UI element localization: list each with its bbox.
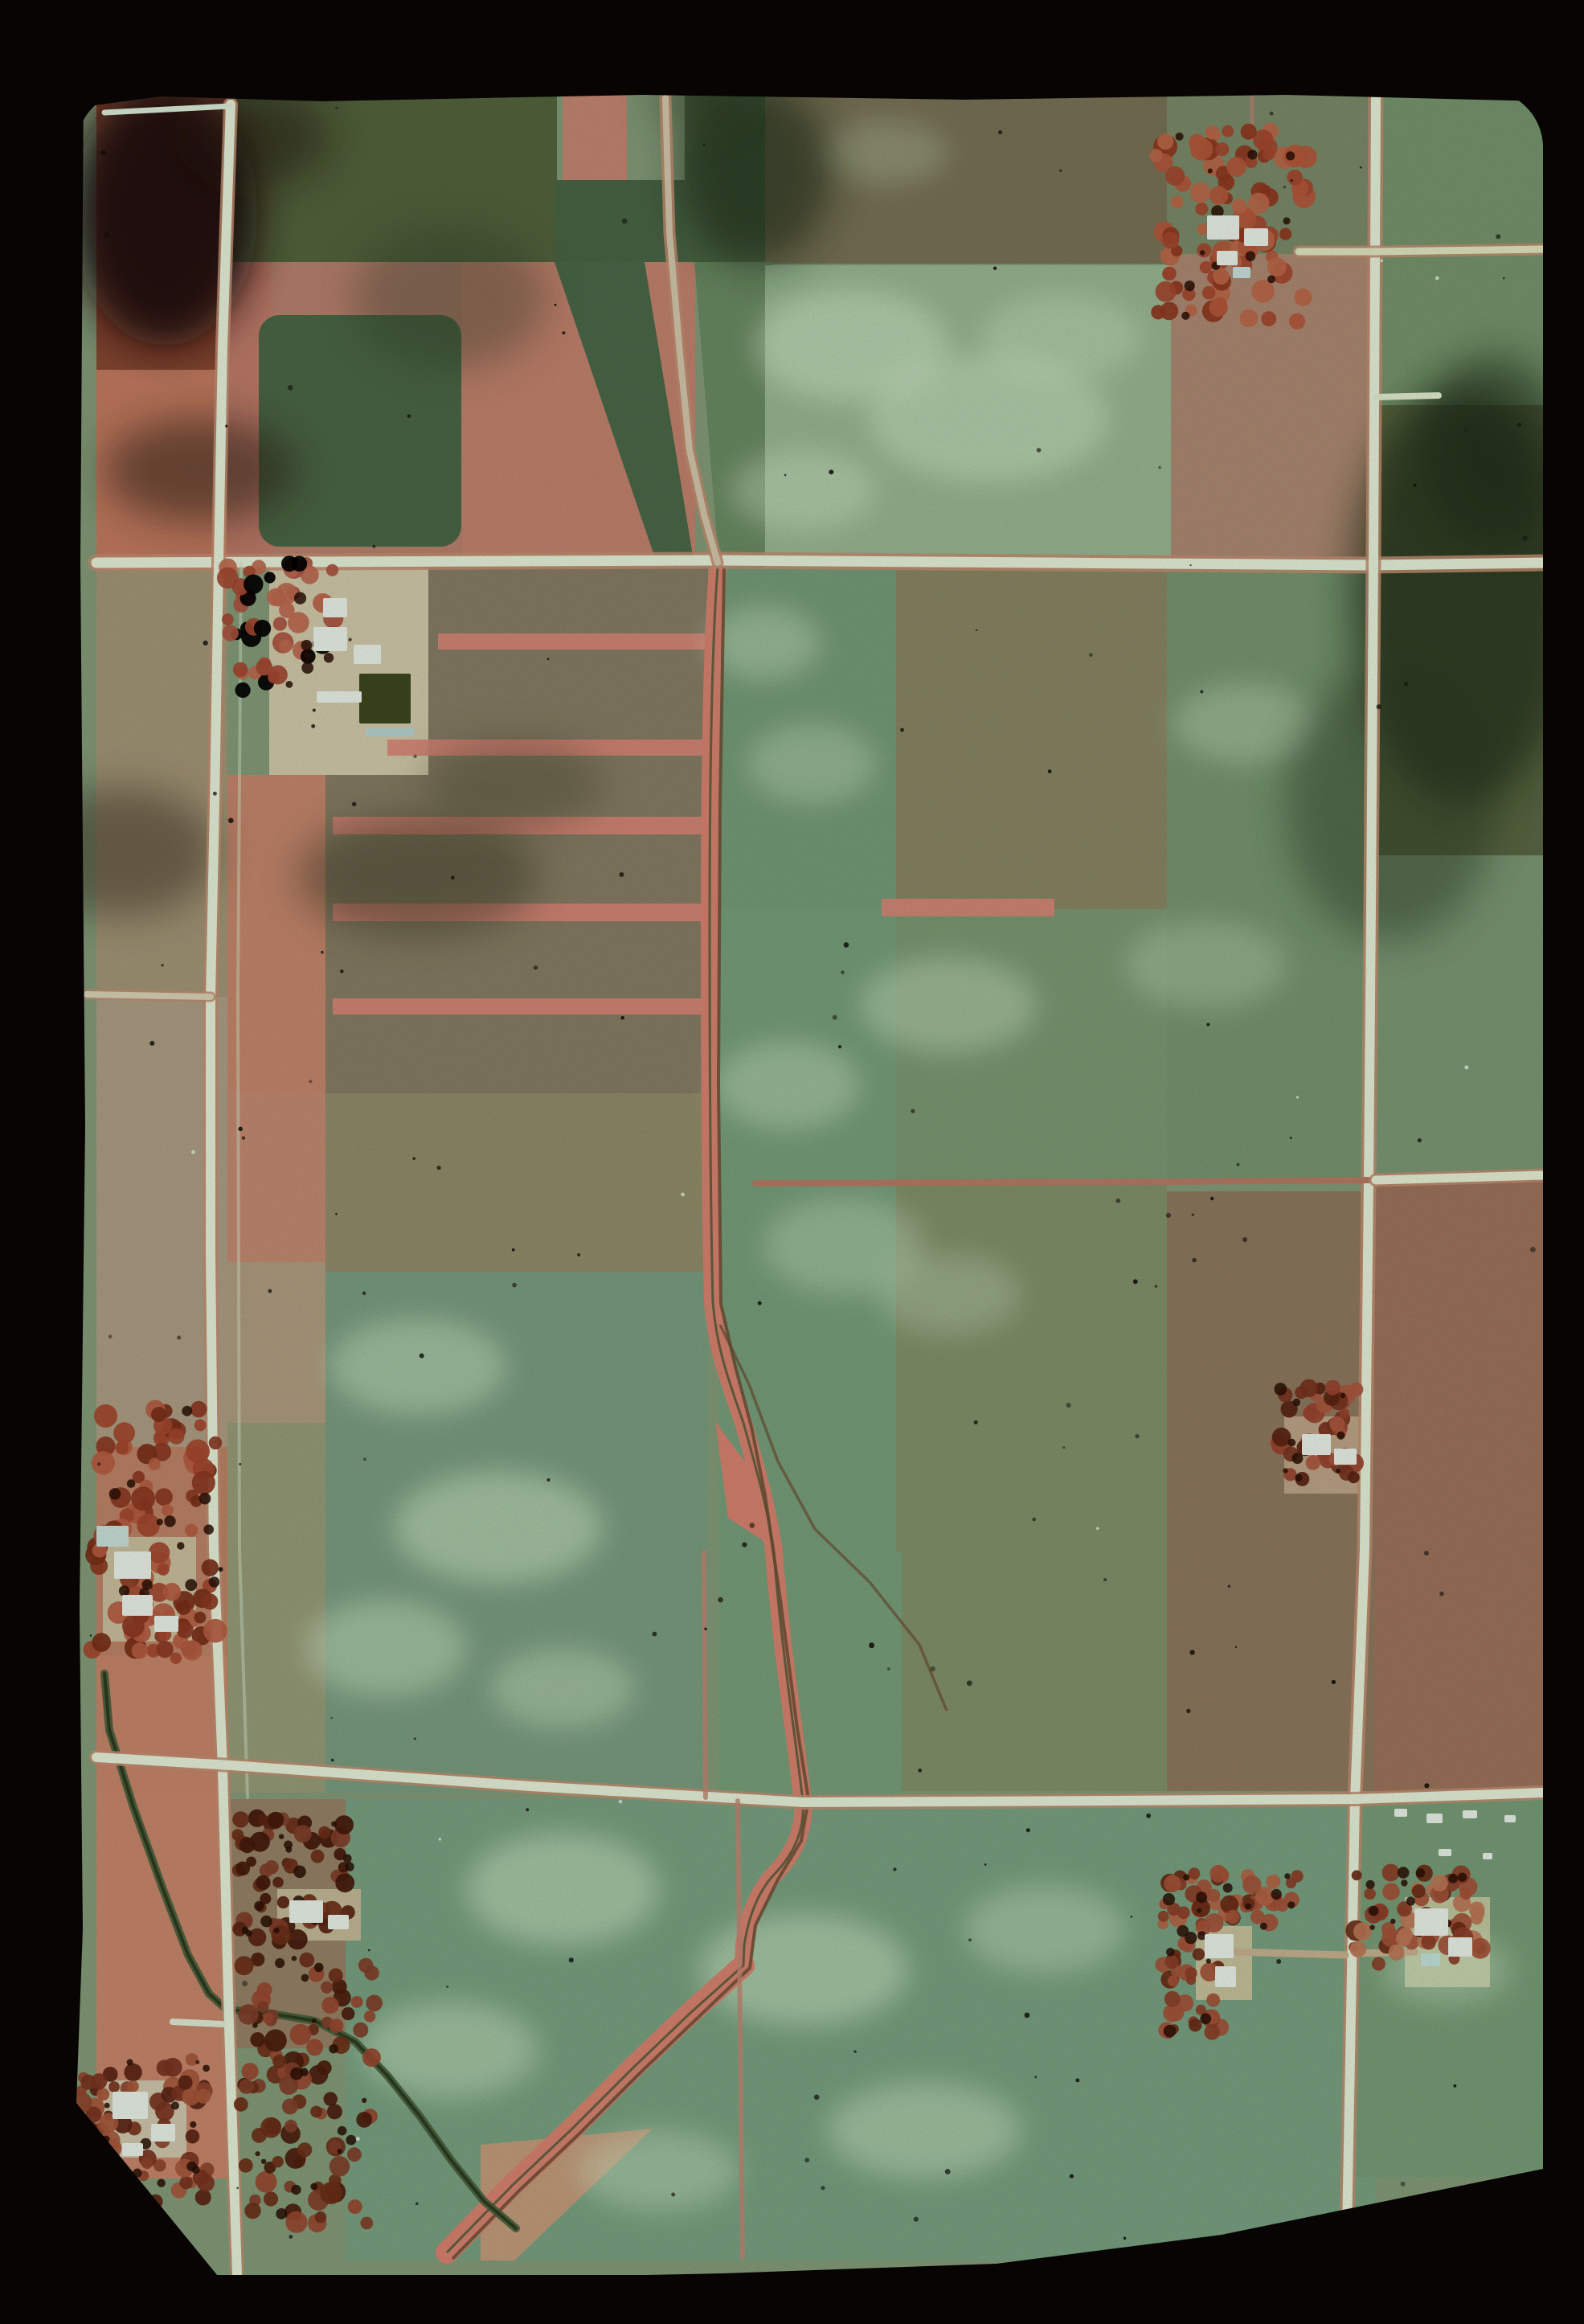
photo-area [24,64,1575,2275]
film-grain-overlay [76,90,1543,2275]
aerial-photograph [0,0,1584,2324]
slide-mount [0,0,1584,2324]
